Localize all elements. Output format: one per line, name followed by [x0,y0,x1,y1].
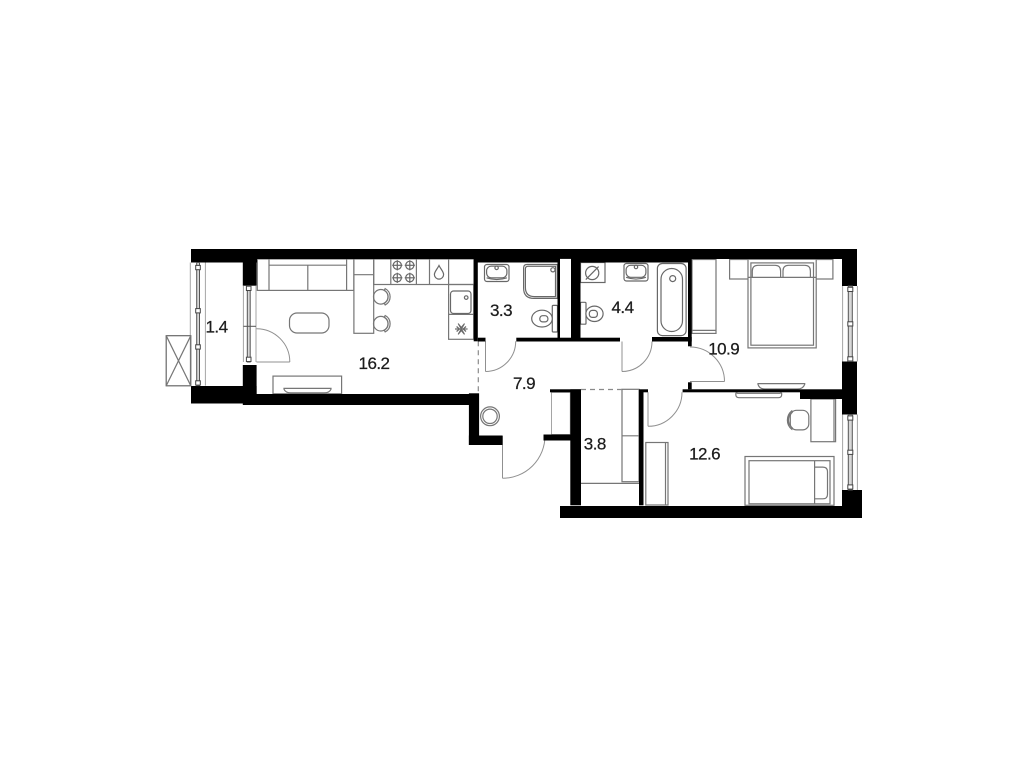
svg-text:4.4: 4.4 [612,298,634,317]
svg-text:7.9: 7.9 [513,374,535,393]
svg-text:12.6: 12.6 [689,445,720,464]
svg-text:1.4: 1.4 [206,317,228,336]
svg-text:3.8: 3.8 [584,435,606,454]
svg-text:3.3: 3.3 [490,301,512,320]
svg-text:16.2: 16.2 [359,354,390,373]
svg-text:10.9: 10.9 [708,339,739,358]
